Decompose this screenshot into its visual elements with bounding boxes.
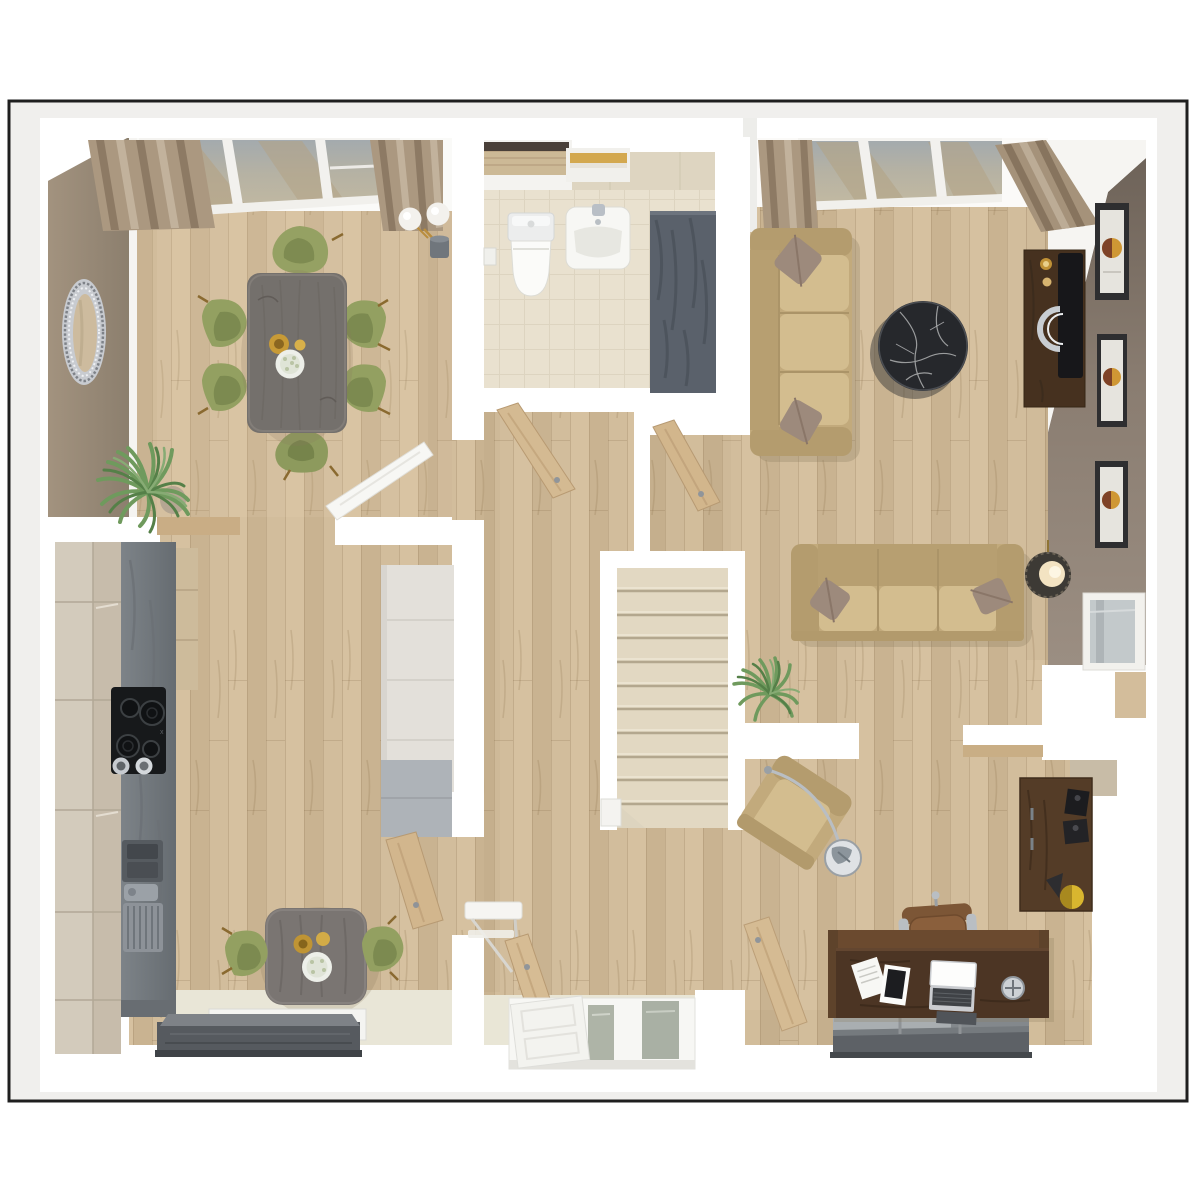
svg-text:x: x <box>160 729 164 736</box>
